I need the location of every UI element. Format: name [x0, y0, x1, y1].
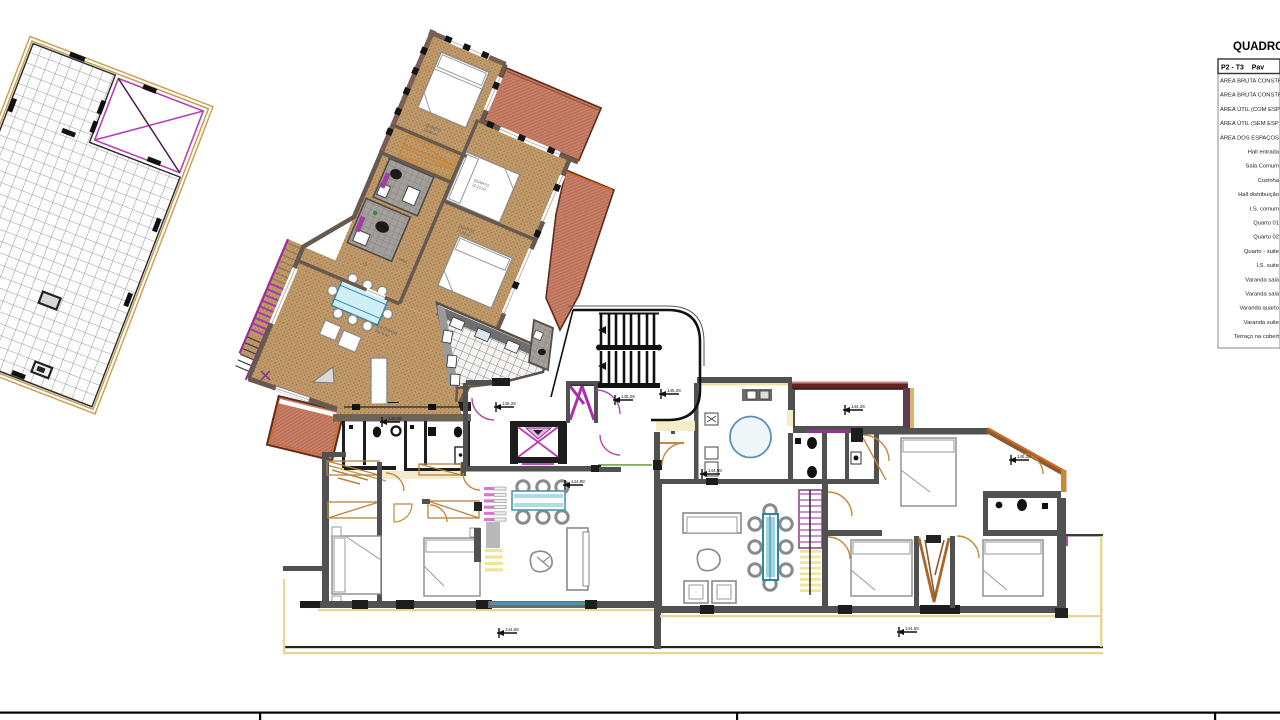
svg-text:ÁREA BRUTA CONSTRU: ÁREA BRUTA CONSTRU — [1220, 92, 1280, 99]
svg-text:145,08: 145,08 — [388, 416, 402, 421]
svg-text:Varanda suite: Varanda suite — [1244, 320, 1279, 326]
svg-text:ÁREA DOS ESPAÇOS: ÁREA DOS ESPAÇOS — [1220, 134, 1279, 141]
svg-text:Varanda sala: Varanda sala — [1245, 292, 1280, 298]
svg-text:Cozinha: Cozinha — [1258, 178, 1280, 184]
svg-text:144,58: 144,58 — [505, 627, 519, 632]
svg-text:ÁREA ÚTIL (SEM ESP: ÁREA ÚTIL (SEM ESP — [1220, 120, 1279, 127]
svg-text:144,58: 144,58 — [905, 626, 919, 631]
svg-text:144,28: 144,28 — [851, 404, 865, 409]
svg-text:Quarto 01: Quarto 01 — [1253, 221, 1279, 227]
svg-text:ÁREA ÚTIL (COM ESP: ÁREA ÚTIL (COM ESP — [1220, 106, 1280, 113]
svg-text:Varanda sala: Varanda sala — [1245, 277, 1280, 283]
svg-text:Terraço na cobert: Terraço na cobert — [1234, 334, 1279, 340]
svg-text:144,98: 144,98 — [708, 468, 722, 473]
svg-text:145,28: 145,28 — [667, 388, 681, 393]
svg-text:144,98: 144,98 — [571, 479, 585, 484]
svg-text:Quarto 02: Quarto 02 — [1253, 235, 1279, 241]
svg-text:145,28: 145,28 — [1017, 454, 1031, 459]
svg-text:Hall distribuição: Hall distribuição — [1238, 192, 1279, 198]
svg-text:P2 - T3 Pav: P2 - T3 Pav — [1221, 65, 1264, 72]
svg-text:145,28: 145,28 — [502, 401, 516, 406]
svg-text:145,28: 145,28 — [621, 394, 635, 399]
svg-text:I.S. comum: I.S. comum — [1250, 206, 1279, 212]
svg-text:ÁREA BRUTA CONSTRU: ÁREA BRUTA CONSTRU — [1220, 78, 1280, 85]
svg-text:Quarto - suite: Quarto - suite — [1244, 249, 1279, 255]
svg-text:QUADRO: QUADRO — [1233, 41, 1280, 53]
svg-text:Hall entrada: Hall entrada — [1248, 150, 1280, 156]
svg-text:Varanda quarto: Varanda quarto — [1239, 306, 1279, 312]
svg-text:I.S. suite: I.S. suite — [1256, 263, 1279, 269]
svg-text:Sala Comum: Sala Comum — [1245, 164, 1279, 170]
